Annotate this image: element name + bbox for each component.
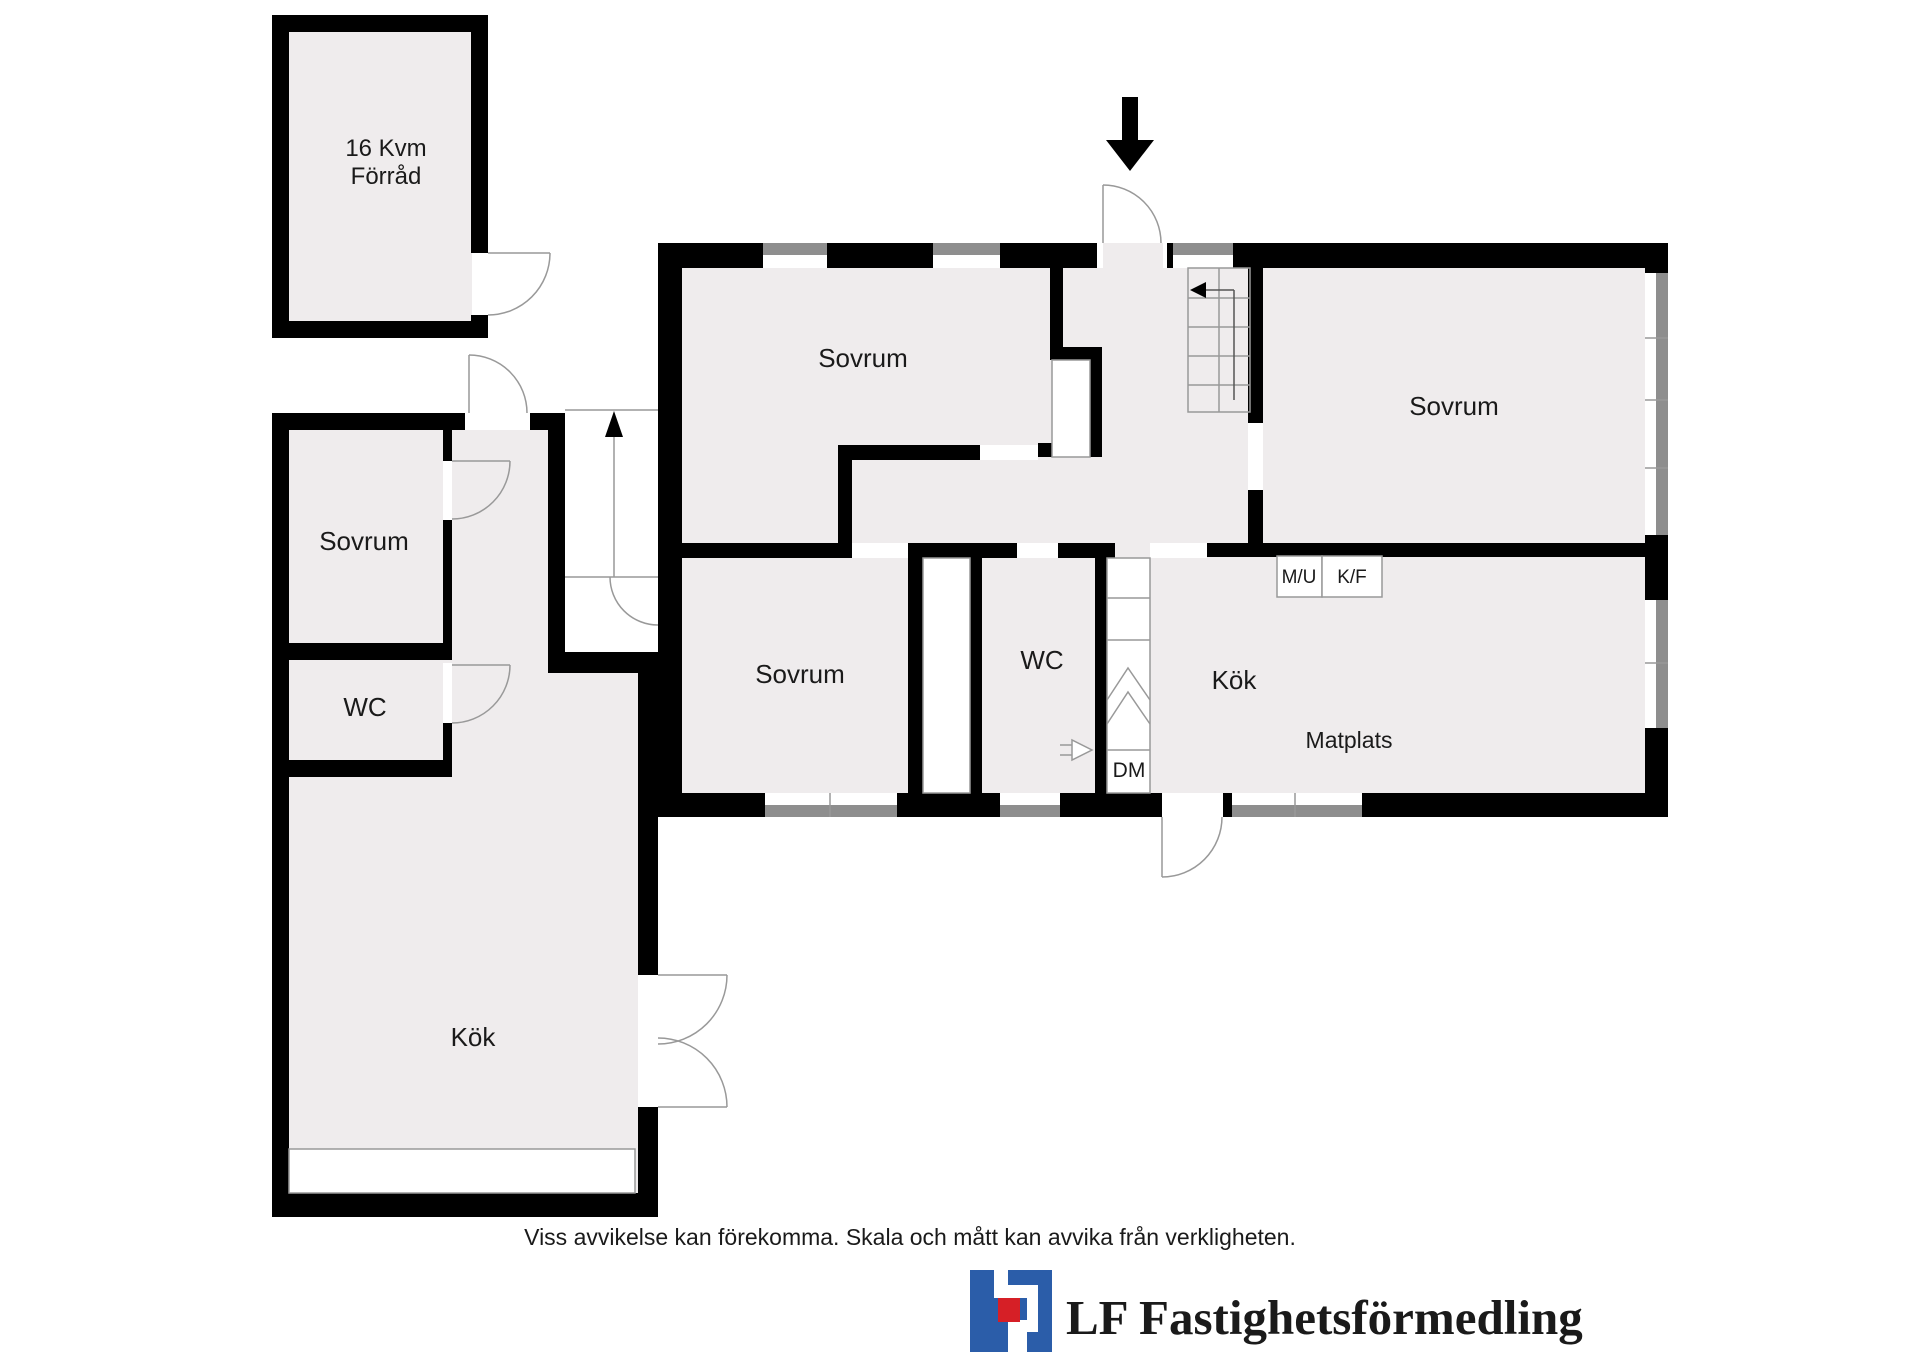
label-bedroom-right: Sovrum [1409,391,1499,421]
window-bottom-1 [765,793,897,817]
storage-door [488,253,550,315]
label-left-wc: WC [343,692,386,722]
company-logo: LF Fastighetsförmedling [970,1270,1583,1352]
window-top-2 [933,243,1000,268]
floor-plan: 16 Kvm Förråd Sovrum WC Kök Sovrum Sovru… [0,0,1920,1357]
label-dishwasher: DM [1113,759,1146,782]
label-dining: Matplats [1306,727,1393,753]
passage [565,410,658,625]
window-top-1 [763,243,827,268]
window-bottom-3 [1232,793,1362,817]
window-right-band-a [1645,273,1668,535]
hall-closet [923,558,970,793]
label-left-bedroom: Sovrum [319,526,409,556]
label-bedroom-bottom: Sovrum [755,659,845,689]
label-appliance-kf: K/F [1337,567,1367,588]
label-storage-name: Förråd [351,163,422,190]
disclaimer-text: Viss avvikelse kan förekomma. Skala och … [524,1224,1296,1250]
main-entry-door [1103,185,1161,243]
entrance-arrow-icon [1106,97,1154,171]
window-bottom-2 [1000,793,1060,817]
label-bedroom-top: Sovrum [818,343,908,373]
window-right-band-b [1645,600,1668,728]
label-storage-size: 16 Kvm [345,135,426,162]
label-main-kitchen: Kök [1212,665,1258,695]
appliance-strip [1107,558,1150,793]
patio-door [1162,817,1222,877]
floor-plan-page: 16 Kvm Förråd Sovrum WC Kök Sovrum Sovru… [0,0,1920,1357]
label-main-wc: WC [1020,645,1063,675]
logo-icon [970,1270,1052,1352]
window-top-3 [1173,243,1233,268]
label-appliance-mu: M/U [1282,567,1317,588]
label-left-kitchen: Kök [451,1022,497,1052]
logo-text: LF Fastighetsförmedling [1066,1290,1583,1345]
left-kitchen-counter [289,1149,635,1193]
entry-closet [1052,360,1090,457]
passage-direction-arrow [605,411,623,437]
